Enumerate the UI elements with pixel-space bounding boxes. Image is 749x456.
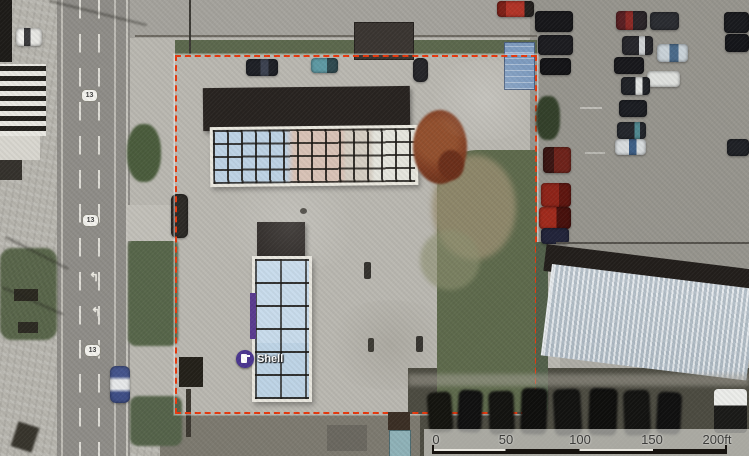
lot-stripe: [585, 152, 605, 154]
concrete-pad-bottom: [327, 425, 367, 451]
gas-pump-icon: [236, 350, 254, 368]
road-edge-left: [61, 0, 63, 456]
car-row-bottom: [457, 389, 483, 432]
car-row-bottom: [488, 391, 514, 435]
sign-dark-west-2: [18, 322, 38, 333]
bush-east-of-road: [127, 124, 161, 182]
top-curb-line: [135, 35, 537, 37]
parcel-boundary: [175, 55, 537, 414]
car-white-west: [16, 28, 42, 46]
top-street-pavement: [130, 0, 560, 38]
south-gravel: [160, 414, 420, 456]
truck-blue-road: [110, 366, 130, 403]
scale-tick-start: [432, 445, 434, 454]
shell-poi-label: Shell: [257, 353, 283, 365]
scale-line: [432, 449, 727, 454]
car: [538, 35, 573, 55]
car: [724, 12, 749, 33]
lane-line-dash-2: [98, 0, 100, 456]
shell-poi-marker[interactable]: Shell: [236, 350, 283, 368]
car-row-bottom: [520, 388, 548, 435]
car-red-east-1: [541, 183, 571, 207]
car: [535, 11, 573, 32]
west-canopy-stripes: [0, 64, 46, 136]
scale-label-50: 50: [499, 432, 513, 447]
bushes-east-boundary: [536, 96, 560, 140]
car-red-east-2: [539, 207, 571, 229]
scale-label-150: 150: [641, 432, 663, 447]
west-pad: [0, 136, 40, 160]
shed-teal-bottom: [389, 430, 411, 456]
west-dark-patch: [0, 160, 22, 180]
car: [622, 36, 653, 55]
turn-arrow-2: ↰: [91, 305, 101, 319]
car: [615, 139, 646, 155]
scale-label-200ft: 200ft: [703, 432, 732, 447]
car: [647, 71, 680, 87]
route-shield-13-a: 13: [81, 89, 98, 102]
truck-darkred-east: [543, 147, 571, 173]
scale-tick-end: [725, 445, 727, 454]
car: [657, 44, 688, 62]
car-red-top: [497, 1, 534, 17]
lane-line-dash-1: [79, 0, 81, 456]
shed-dark-bottom: [388, 412, 410, 430]
curb-line-east: [556, 242, 749, 244]
car-row-bottom: [427, 391, 454, 433]
gravel-path-bottom: [408, 374, 749, 386]
car: [621, 77, 650, 95]
aerial-photo: 13 13 13 ↰ ↰ Shell: [0, 0, 749, 456]
route-shield-13-b: 13: [82, 214, 99, 227]
west-building-roof: [0, 0, 12, 62]
car: [616, 11, 647, 30]
lot-stripe: [580, 107, 602, 109]
car: [725, 34, 749, 52]
driveway-apron: [128, 205, 176, 241]
turn-arrow-1: ↰: [89, 270, 99, 284]
car: [727, 139, 749, 156]
route-shield-13-c: 13: [84, 344, 101, 357]
car: [650, 12, 679, 30]
car: [619, 100, 647, 117]
truck-white-bottom-right: [714, 389, 747, 433]
car: [617, 122, 646, 139]
verge-grass-mid: [128, 238, 178, 346]
scale-bar: 0 50 100 150 200ft: [424, 429, 749, 456]
utility-pole: [189, 0, 191, 54]
car: [614, 57, 644, 74]
car: [540, 58, 571, 75]
scale-label-100: 100: [569, 432, 591, 447]
